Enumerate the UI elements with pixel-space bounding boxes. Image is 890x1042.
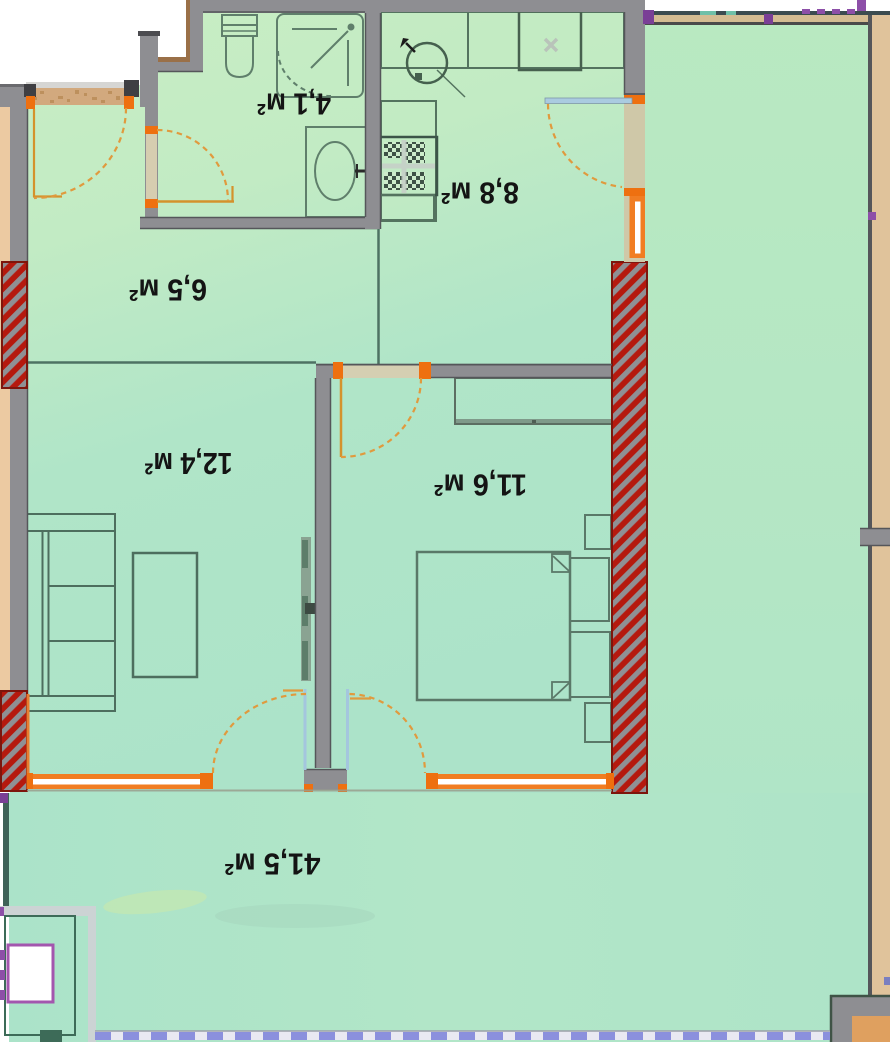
svg-text:4,1 м²: 4,1 м² [257,87,331,122]
svg-text:12,4 м²: 12,4 м² [145,446,233,481]
svg-text:41,5 м²: 41,5 м² [225,847,321,882]
svg-text:8,8 м²: 8,8 м² [441,176,519,211]
svg-text:6,5 м²: 6,5 м² [129,273,207,308]
svg-text:11,6 м²: 11,6 м² [434,468,527,503]
